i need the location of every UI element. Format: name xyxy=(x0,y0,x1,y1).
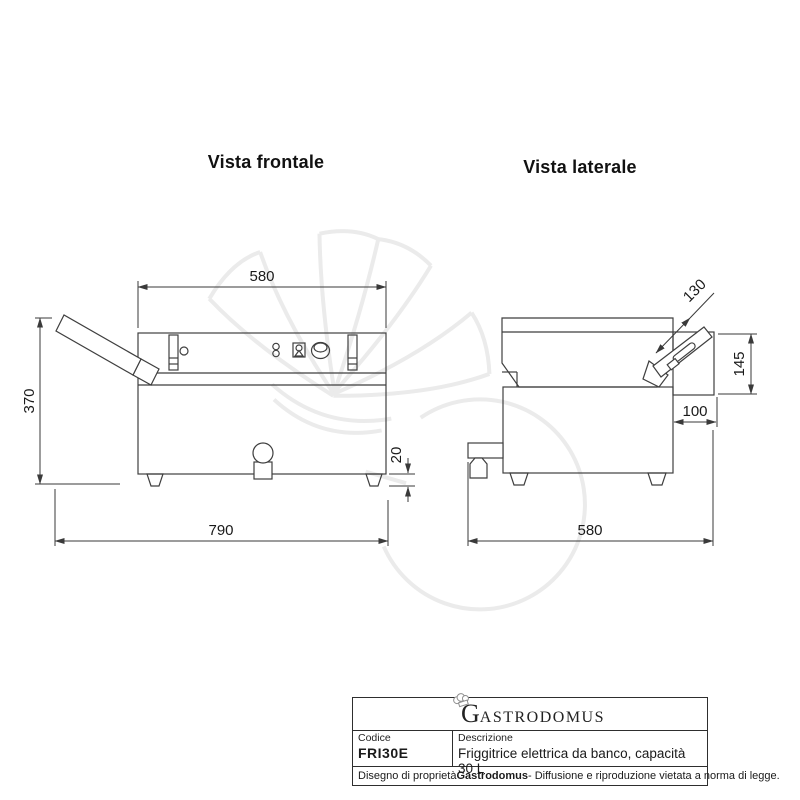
drawing-sheet: Vista frontale Vista laterale xyxy=(0,0,800,800)
dim-side-back-height: 145 xyxy=(731,351,748,376)
title-block-data-row: Codice FRI30E Descrizione Friggitrice el… xyxy=(353,731,707,767)
description-cell: Descrizione Friggitrice elettrica da ban… xyxy=(453,731,707,766)
dim-front-feet-height: 20 xyxy=(388,447,405,464)
property-note: Disegno di proprietà Gastrodomus - Diffu… xyxy=(353,767,707,784)
front-pilot-light-icon xyxy=(180,347,188,355)
dim-side-handle-length: 130 xyxy=(680,276,710,306)
title-block: GASTRODOMUS Codice FRI30E Descrizione Fr… xyxy=(352,697,708,786)
side-body xyxy=(503,387,673,473)
dim-front-width-total: 790 xyxy=(208,522,233,539)
front-drain-valve xyxy=(253,443,273,479)
watermark-logo xyxy=(146,198,643,635)
front-left-foot xyxy=(147,474,163,486)
side-dimensions xyxy=(468,293,757,546)
note-suffix: - Diffusione e riproduzione vietata a no… xyxy=(528,770,780,782)
side-basket-handle xyxy=(643,327,712,387)
code-label: Codice xyxy=(358,732,448,744)
dim-side-back-depth: 100 xyxy=(682,403,707,420)
side-right-foot xyxy=(648,473,666,485)
dim-front-width-top: 580 xyxy=(249,268,274,285)
dim-side-depth: 580 xyxy=(577,522,602,539)
gastrodomus-logo: GASTRODOMUS xyxy=(455,701,605,727)
side-drain-valve xyxy=(468,443,503,478)
description-label: Descrizione xyxy=(458,732,703,744)
front-view xyxy=(56,315,386,486)
code-value: FRI30E xyxy=(358,745,448,761)
front-basket-handle xyxy=(56,315,159,385)
title-block-logo-row: GASTRODOMUS xyxy=(353,698,707,731)
dim-front-height: 370 xyxy=(21,388,38,413)
front-left-bracket xyxy=(169,335,178,370)
code-cell: Codice FRI30E xyxy=(353,731,453,766)
logo-rest: ASTRODOMUS xyxy=(480,709,605,726)
technical-drawing-canvas: 580 370 20 790 xyxy=(0,0,800,800)
side-left-foot xyxy=(510,473,528,485)
note-brand: Gastrodomus xyxy=(456,770,528,782)
note-prefix: Disegno di proprietà xyxy=(358,770,456,782)
chef-hat-icon xyxy=(451,693,471,709)
